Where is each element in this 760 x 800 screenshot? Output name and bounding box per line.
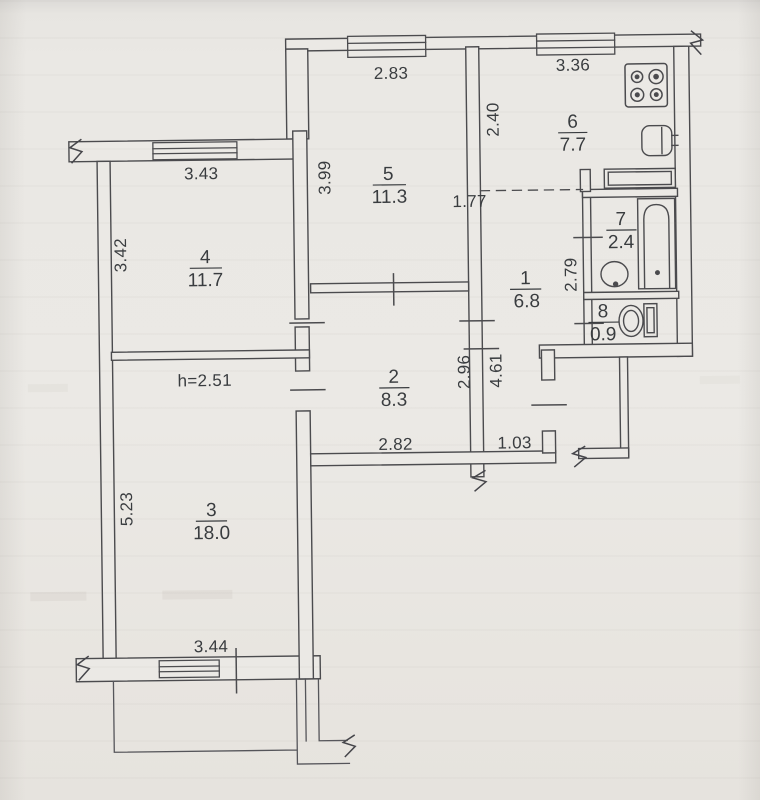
room-number: 6	[567, 112, 578, 133]
room-label-7: 7 2.4	[607, 209, 637, 253]
dimension-label: 2.79	[561, 257, 580, 292]
room-label-3: 3 18.0	[193, 500, 231, 544]
dimension-label: 3.99	[315, 160, 334, 195]
room-area: 6.8	[513, 291, 540, 312]
room-area: 0.9	[590, 324, 617, 345]
wall-segment	[582, 188, 677, 197]
room-area: 2.4	[608, 232, 635, 253]
room-area: 11.3	[372, 187, 408, 208]
break-balcony	[343, 735, 355, 756]
dimension-label: 3.43	[184, 164, 219, 183]
room-label-6: 6 7.7	[558, 111, 587, 155]
room-number: 5	[383, 164, 394, 185]
dimension-label: 2.40	[483, 102, 502, 137]
room-labels: 1 6.8 2 8.3 3 18.0 4 11.7 5	[186, 111, 640, 544]
window-kitchen	[537, 33, 615, 55]
wall-segment	[111, 350, 309, 360]
room-area: 11.7	[188, 270, 224, 291]
washbasin-icon	[601, 261, 628, 286]
room-area: 7.7	[560, 134, 587, 155]
wall-segment	[539, 343, 692, 358]
dimension-label: 4.61	[486, 353, 505, 388]
dimension-label: 1.03	[497, 433, 532, 452]
floor-plan-page: 1 6.8 2 8.3 3 18.0 4 11.7 5	[0, 0, 760, 800]
wall-segment	[674, 46, 693, 356]
vent-shaft	[604, 168, 675, 188]
dimension-label: 3.44	[194, 637, 229, 656]
dimension-label: 2.82	[378, 435, 413, 454]
balcony-outline	[113, 678, 349, 766]
wall-segment	[311, 282, 469, 293]
room-number: 3	[206, 500, 217, 521]
kitchen-open-boundary	[480, 190, 582, 191]
wall-segment	[541, 350, 554, 380]
dimension-label: 3.42	[111, 238, 130, 273]
tick-room3-bottom	[236, 649, 237, 693]
dimension-label: 2.83	[374, 64, 409, 83]
wall-segment	[584, 291, 679, 299]
room-number: 8	[598, 301, 609, 322]
kitchen-sink-icon	[642, 125, 678, 155]
ceiling-height-label: h=2.51	[177, 371, 232, 391]
room-number: 7	[615, 209, 626, 230]
window-room4	[153, 142, 237, 160]
wall-segment	[293, 131, 309, 319]
window-room5	[348, 35, 426, 57]
wall-segment	[295, 327, 310, 371]
wall-segment	[97, 161, 116, 661]
dimension-label: 1.77	[452, 192, 487, 211]
room-label-1: 1 6.8	[510, 268, 541, 312]
wall-segment	[580, 169, 590, 191]
toilet-icon	[619, 304, 657, 337]
wall-segment	[311, 451, 556, 466]
room-label-2: 2 8.3	[380, 367, 410, 411]
wall-segment	[619, 357, 628, 457]
wall-segment	[466, 47, 484, 477]
bathtub-icon	[638, 198, 676, 288]
wall-segment	[286, 49, 309, 139]
room-label-4: 4 11.7	[187, 247, 223, 291]
wall-segment	[296, 411, 313, 679]
stove-icon	[625, 63, 668, 107]
room-area: 18.0	[193, 523, 230, 544]
wall-segment	[542, 431, 555, 453]
walls	[68, 34, 709, 682]
room-number: 2	[388, 367, 399, 388]
dimension-label: 3.36	[556, 55, 591, 74]
dimension-label: 5.23	[117, 492, 136, 527]
room-area: 8.3	[381, 390, 408, 411]
dimension-label: 2.96	[454, 355, 473, 390]
window-room3	[159, 660, 219, 678]
floor-plan-drawing: 1 6.8 2 8.3 3 18.0 4 11.7 5	[0, 0, 760, 800]
room-label-5: 5 11.3	[371, 164, 407, 208]
room-number: 1	[520, 268, 531, 289]
room-number: 4	[200, 247, 211, 268]
